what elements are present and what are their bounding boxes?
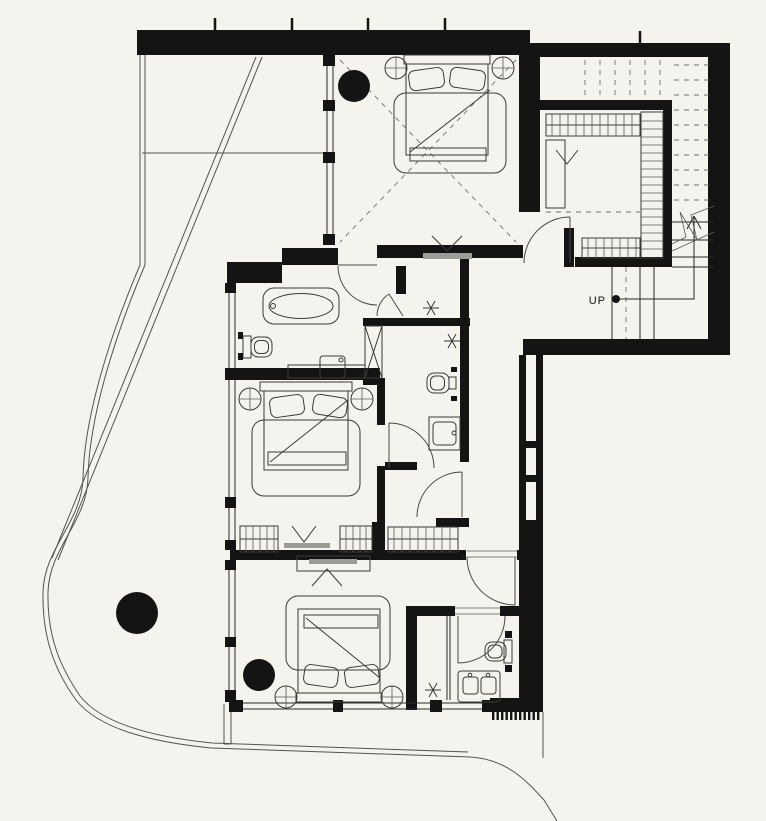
tv bbox=[309, 559, 357, 564]
stair-start-dot bbox=[612, 295, 620, 303]
tv bbox=[284, 543, 330, 548]
tv bbox=[423, 253, 472, 259]
floor-plan: UP bbox=[0, 0, 766, 821]
floor-plan-drawing: UP bbox=[0, 0, 766, 821]
structural-column bbox=[243, 659, 275, 691]
up-label: UP bbox=[589, 295, 606, 307]
site-column bbox=[116, 592, 158, 634]
structural-column bbox=[338, 70, 370, 102]
